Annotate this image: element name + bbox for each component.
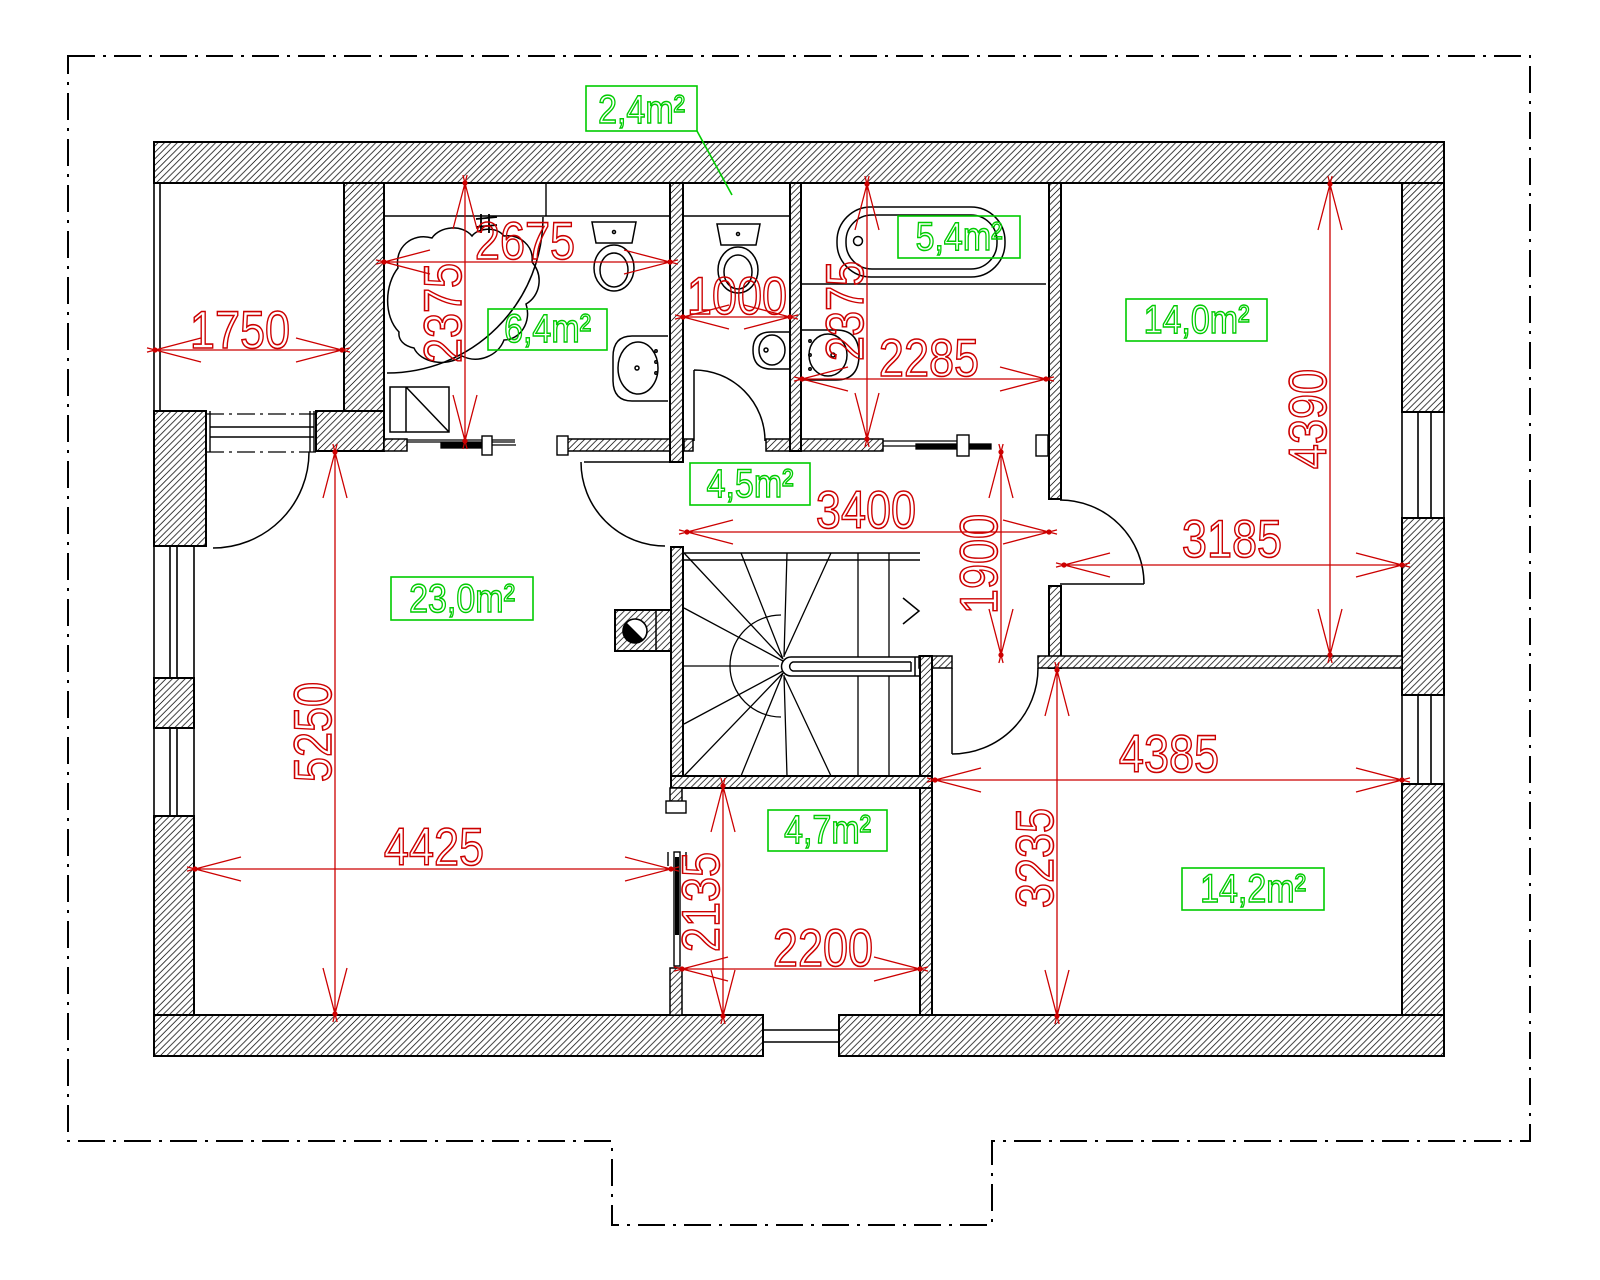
svg-text:4385: 4385 xyxy=(1119,725,1219,784)
svg-text:1000: 1000 xyxy=(687,267,787,326)
svg-text:1750: 1750 xyxy=(190,301,290,360)
svg-text:2,4m²: 2,4m² xyxy=(598,86,685,131)
svg-text:14,0m²: 14,0m² xyxy=(1144,296,1250,341)
svg-text:4425: 4425 xyxy=(384,818,484,877)
svg-text:5,4m²: 5,4m² xyxy=(916,213,1003,258)
svg-text:23,0m²: 23,0m² xyxy=(409,575,515,620)
svg-text:2135: 2135 xyxy=(672,852,731,952)
svg-text:2285: 2285 xyxy=(879,329,979,388)
svg-text:3235: 3235 xyxy=(1006,808,1065,908)
svg-text:2375: 2375 xyxy=(816,261,875,361)
svg-text:4390: 4390 xyxy=(1279,369,1338,469)
svg-text:3185: 3185 xyxy=(1182,510,1282,569)
svg-text:2675: 2675 xyxy=(475,212,575,271)
svg-text:5250: 5250 xyxy=(284,682,343,782)
svg-text:4,5m²: 4,5m² xyxy=(707,460,794,505)
svg-text:14,2m²: 14,2m² xyxy=(1200,865,1306,910)
svg-text:2200: 2200 xyxy=(773,919,873,978)
svg-text:1900: 1900 xyxy=(950,514,1009,614)
svg-text:2375: 2375 xyxy=(414,263,473,363)
svg-text:3400: 3400 xyxy=(816,481,916,540)
svg-text:6,4m²: 6,4m² xyxy=(504,305,591,350)
svg-text:4,7m²: 4,7m² xyxy=(784,806,871,851)
